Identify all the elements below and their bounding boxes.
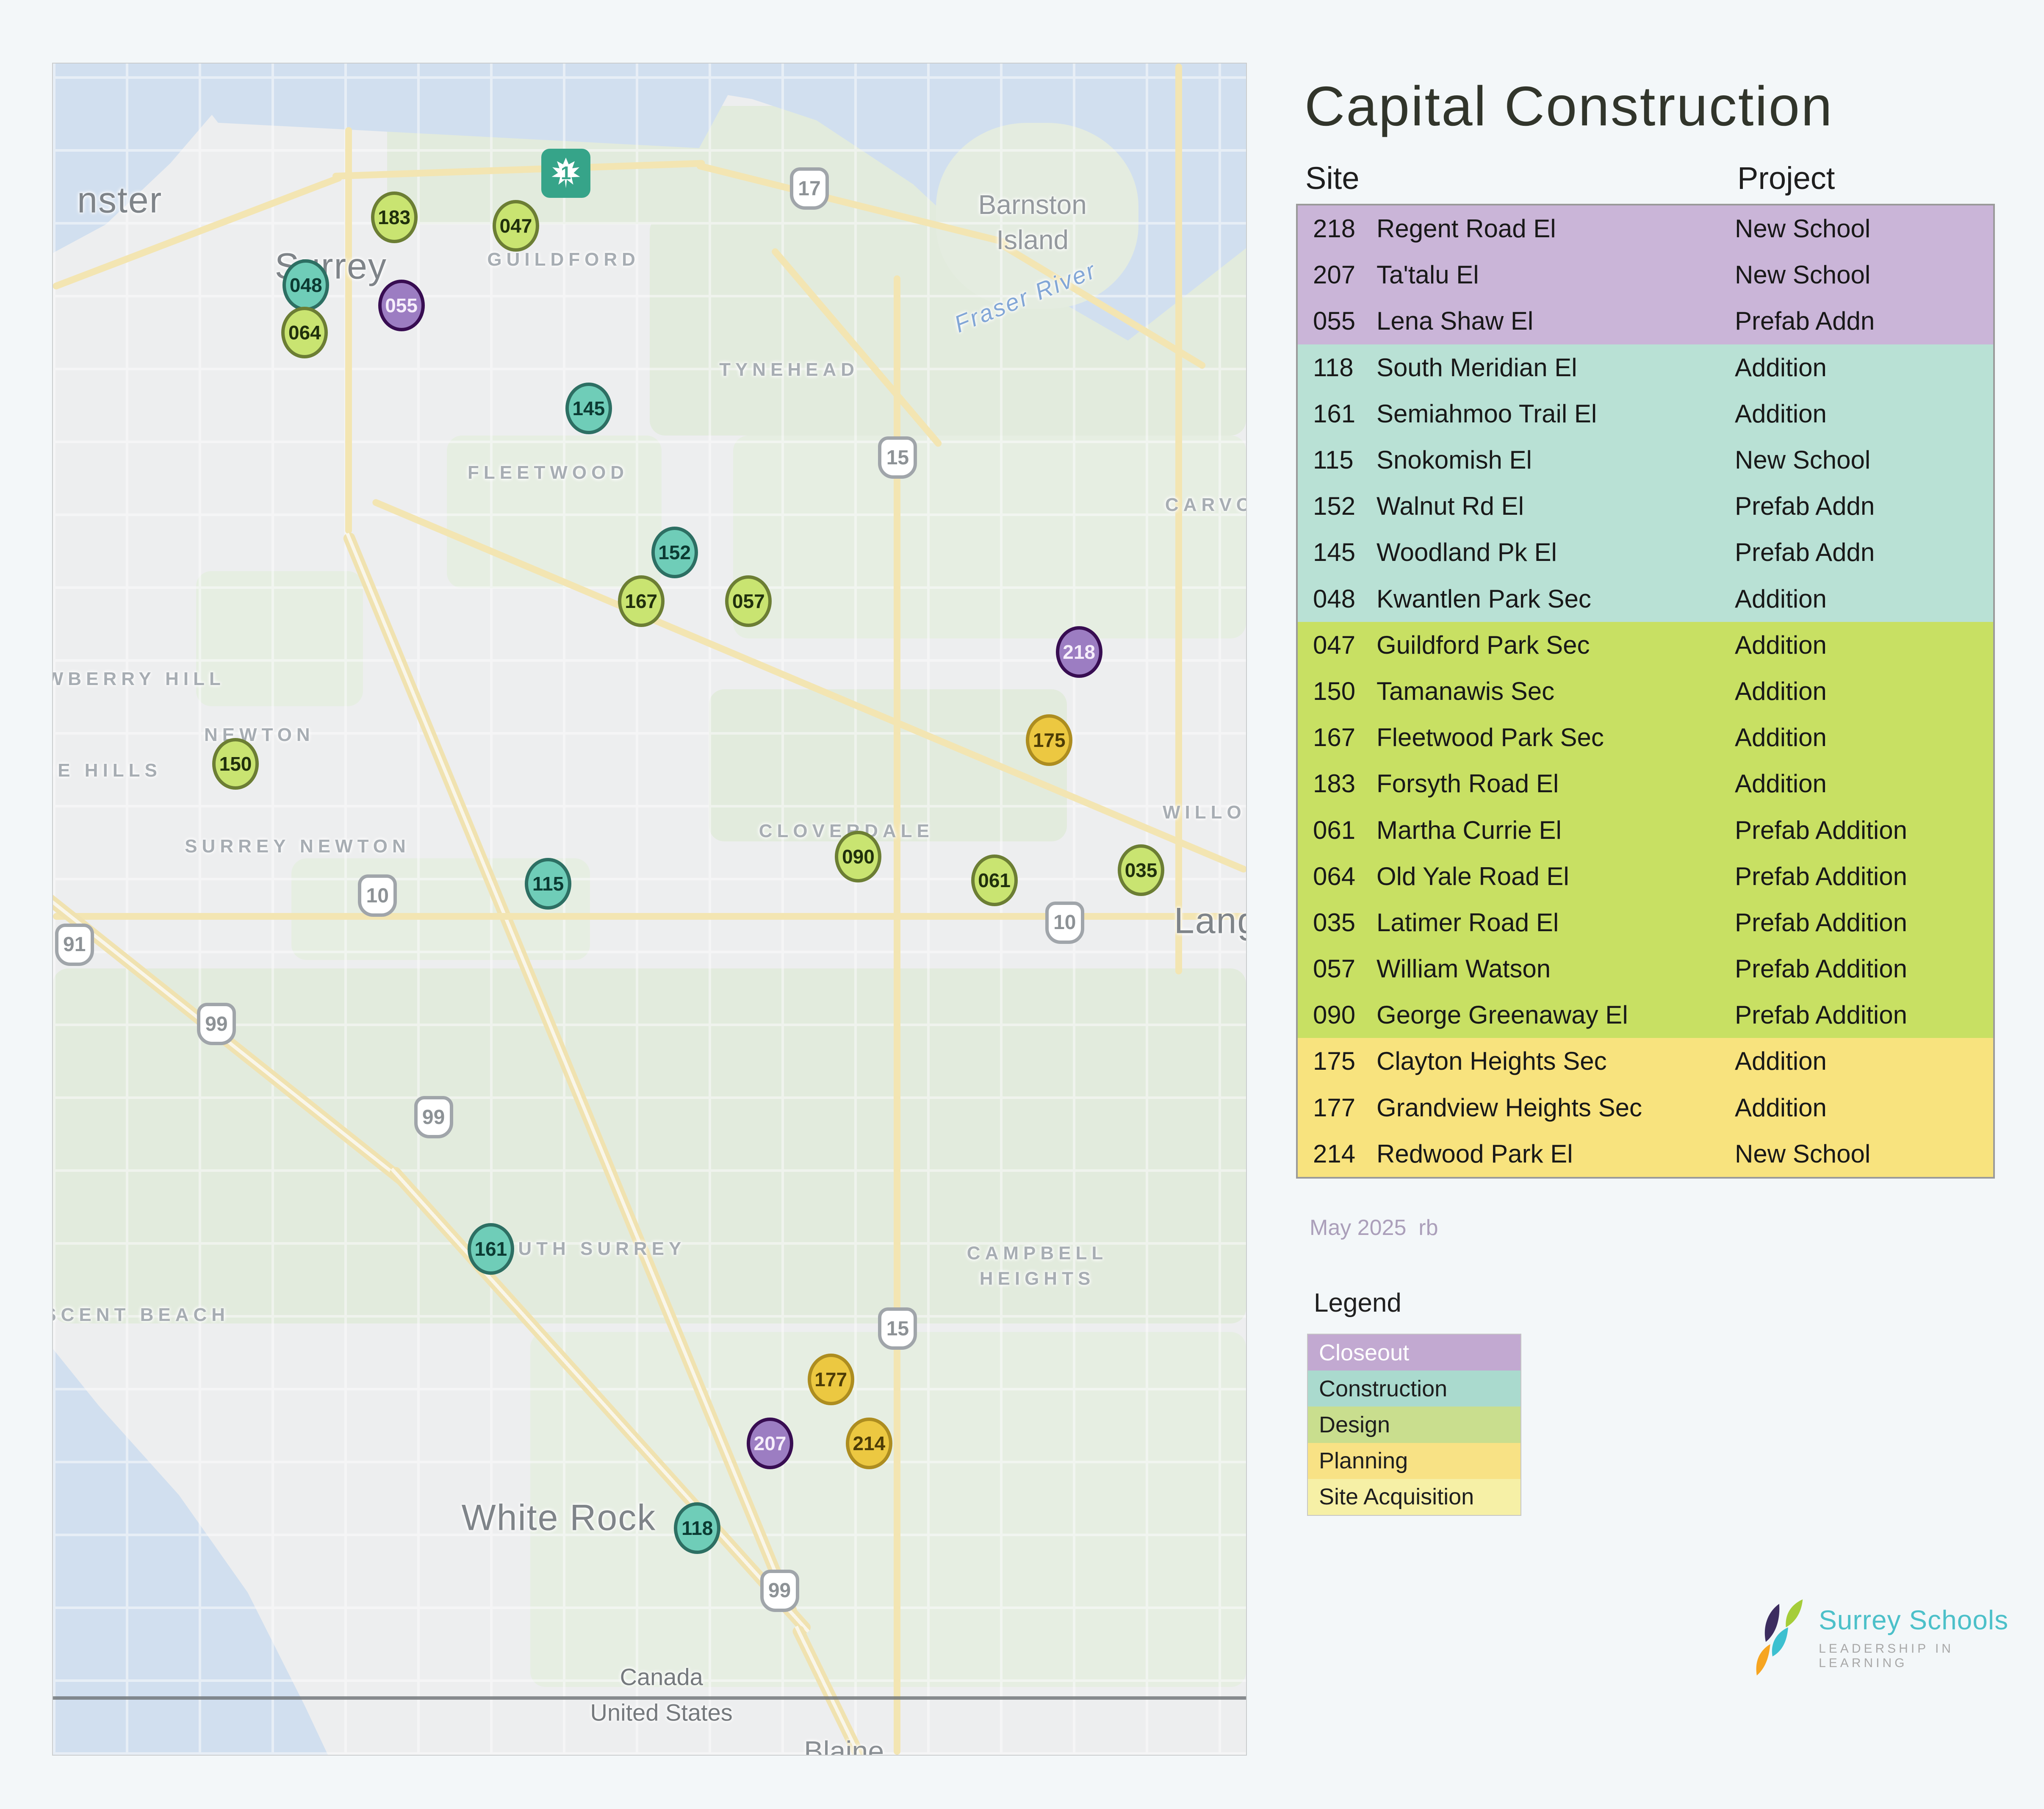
- highway-shield: 17: [790, 167, 829, 210]
- site-name: Old Yale Road El: [1377, 862, 1735, 891]
- table-row: 061Martha Currie ElPrefab Addition: [1298, 807, 1993, 853]
- table-row: 177Grandview Heights SecAddition: [1298, 1085, 1993, 1131]
- site-name: Tamanawis Sec: [1377, 677, 1735, 706]
- project-type: Prefab Addition: [1735, 862, 1993, 891]
- site-marker-218: 218: [1056, 626, 1102, 678]
- site-number: 115: [1313, 445, 1377, 474]
- project-type: Prefab Addn: [1735, 538, 1993, 567]
- site-marker-118: 118: [674, 1502, 720, 1554]
- site-number: 048: [1313, 584, 1377, 613]
- site-number: 145: [1313, 538, 1377, 567]
- table-row: 115Snokomish ElNew School: [1298, 437, 1993, 483]
- site-number: 064: [1313, 862, 1377, 891]
- table-row: 055Lena Shaw ElPrefab Addn: [1298, 298, 1993, 344]
- footnote-date: May 2025 rb: [1310, 1215, 1438, 1240]
- highway-shield: 99: [197, 1003, 236, 1045]
- table-row: 167Fleetwood Park SecAddition: [1298, 714, 1993, 760]
- site-name: Latimer Road El: [1377, 908, 1735, 937]
- logo-leaf-icon: [1753, 1597, 1809, 1678]
- site-name: Lena Shaw El: [1377, 306, 1735, 336]
- site-marker-177: 177: [808, 1354, 854, 1405]
- map-label: ESCENT BEACH: [52, 1304, 230, 1326]
- site-marker-048: 048: [283, 259, 329, 311]
- project-type: Addition: [1735, 584, 1993, 613]
- site-name: Forsyth Road El: [1377, 769, 1735, 798]
- map-label: Barnston Island: [939, 187, 1126, 258]
- legend: CloseoutConstructionDesignPlanningSite A…: [1307, 1334, 1521, 1516]
- project-type: New School: [1735, 445, 1993, 474]
- site-name: Redwood Park El: [1377, 1139, 1735, 1168]
- site-name: Grandview Heights Sec: [1377, 1093, 1735, 1122]
- site-marker-035: 035: [1118, 844, 1164, 896]
- map-label: CARVO: [1165, 494, 1247, 516]
- highway-shield: 15: [878, 1307, 917, 1350]
- map-label: TYNEHEAD: [719, 359, 859, 380]
- site-marker-183: 183: [371, 191, 418, 243]
- map-label: NE HILLS: [52, 760, 162, 781]
- table-row: 152Walnut Rd ElPrefab Addn: [1298, 483, 1993, 529]
- legend-item: Construction: [1308, 1371, 1521, 1407]
- table-row: 047Guildford Park SecAddition: [1298, 622, 1993, 668]
- table-row: 214Redwood Park ElNew School: [1298, 1131, 1993, 1177]
- map-label: WILLO: [1163, 802, 1246, 823]
- table-row: 118South Meridian ElAddition: [1298, 344, 1993, 391]
- project-type: New School: [1735, 214, 1993, 243]
- map-label: Canada: [620, 1663, 703, 1691]
- site-number: 118: [1313, 353, 1377, 382]
- project-type: Prefab Addition: [1735, 954, 1993, 983]
- project-type: Prefab Addn: [1735, 306, 1993, 336]
- site-number: 152: [1313, 491, 1377, 521]
- site-name: Clayton Heights Sec: [1377, 1046, 1735, 1076]
- site-name: Walnut Rd El: [1377, 491, 1735, 521]
- site-marker-090: 090: [835, 831, 881, 882]
- legend-item: Design: [1308, 1407, 1521, 1443]
- legend-item: Planning: [1308, 1443, 1521, 1479]
- map-label: SURREY NEWTON: [185, 836, 410, 857]
- table-row: 161Semiahmoo Trail ElAddition: [1298, 391, 1993, 437]
- legend-item: Closeout: [1308, 1335, 1521, 1371]
- surrey-map: nsterSurreyGUILDFORDBarnston IslandFrase…: [52, 63, 1247, 1756]
- site-number: 035: [1313, 908, 1377, 937]
- site-number: 061: [1313, 816, 1377, 845]
- project-type: Addition: [1735, 1093, 1993, 1122]
- site-name: Regent Road El: [1377, 214, 1735, 243]
- table-row: 150Tamanawis SecAddition: [1298, 668, 1993, 714]
- site-marker-167: 167: [618, 575, 665, 627]
- site-name: Martha Currie El: [1377, 816, 1735, 845]
- site-marker-064: 064: [281, 307, 328, 358]
- site-name: Snokomish El: [1377, 445, 1735, 474]
- site-marker-207: 207: [747, 1418, 793, 1469]
- project-type: Addition: [1735, 723, 1993, 752]
- project-type: New School: [1735, 1139, 1993, 1168]
- column-header-site: Site: [1305, 160, 1360, 196]
- project-type: Prefab Addition: [1735, 908, 1993, 937]
- site-number: 175: [1313, 1046, 1377, 1076]
- highway-shield: 10: [1045, 902, 1084, 944]
- site-marker-061: 061: [971, 855, 1018, 906]
- site-name: George Greenaway El: [1377, 1000, 1735, 1029]
- map-label: White Rock: [462, 1497, 656, 1539]
- site-name: Woodland Pk El: [1377, 538, 1735, 567]
- table-row: 057William WatsonPrefab Addition: [1298, 946, 1993, 992]
- table-row: 090George Greenaway ElPrefab Addition: [1298, 992, 1993, 1038]
- site-number: 090: [1313, 1000, 1377, 1029]
- site-marker-047: 047: [493, 200, 539, 252]
- map-label: United States: [590, 1699, 733, 1726]
- site-number: 057: [1313, 954, 1377, 983]
- highway-shield: 10: [358, 874, 397, 917]
- column-header-project: Project: [1737, 160, 1835, 196]
- highway-shield: 15: [878, 436, 917, 479]
- map-label: NEWTON: [204, 724, 315, 746]
- project-type: Addition: [1735, 399, 1993, 428]
- project-type: New School: [1735, 260, 1993, 289]
- projects-table: 218Regent Road ElNew School207Ta'talu El…: [1296, 204, 1995, 1179]
- site-number: 218: [1313, 214, 1377, 243]
- site-name: Guildford Park Sec: [1377, 630, 1735, 660]
- table-row: 183Forsyth Road ElAddition: [1298, 760, 1993, 807]
- project-type: Addition: [1735, 1046, 1993, 1076]
- site-name: Fleetwood Park Sec: [1377, 723, 1735, 752]
- table-row: 218Regent Road ElNew School: [1298, 205, 1993, 252]
- page-title: Capital Construction: [1305, 74, 1834, 138]
- surrey-schools-logo: Surrey Schools LEADERSHIP IN LEARNING: [1753, 1597, 2044, 1678]
- site-marker-175: 175: [1026, 714, 1072, 766]
- map-label: Blaine: [804, 1735, 884, 1756]
- project-type: Addition: [1735, 677, 1993, 706]
- site-name: Semiahmoo Trail El: [1377, 399, 1735, 428]
- highway-shield: 99: [760, 1570, 799, 1612]
- highway-shield: 99: [414, 1096, 453, 1138]
- site-number: 150: [1313, 677, 1377, 706]
- table-row: 048Kwantlen Park SecAddition: [1298, 576, 1993, 622]
- map-label: AWBERRY HILL: [52, 669, 225, 690]
- table-row: 207Ta'talu ElNew School: [1298, 252, 1993, 298]
- highway-shield: 91: [55, 924, 94, 966]
- site-number: 167: [1313, 723, 1377, 752]
- site-marker-152: 152: [651, 527, 698, 578]
- site-number: 207: [1313, 260, 1377, 289]
- map-label: FLEETWOOD: [468, 462, 629, 483]
- site-name: Kwantlen Park Sec: [1377, 584, 1735, 613]
- site-name: South Meridian El: [1377, 353, 1735, 382]
- site-number: 214: [1313, 1139, 1377, 1168]
- highway-1-number: 1: [561, 163, 571, 184]
- site-marker-161: 161: [468, 1223, 514, 1275]
- project-type: Addition: [1735, 769, 1993, 798]
- capital-construction-dashboard: nsterSurreyGUILDFORDBarnston IslandFrase…: [0, 0, 2044, 1809]
- table-row: 035Latimer Road ElPrefab Addition: [1298, 899, 1993, 946]
- site-marker-214: 214: [846, 1418, 892, 1469]
- logo-tagline: LEADERSHIP IN LEARNING: [1819, 1642, 2044, 1670]
- site-marker-055: 055: [378, 280, 425, 331]
- site-marker-057: 057: [725, 575, 772, 627]
- project-type: Prefab Addition: [1735, 1000, 1993, 1029]
- project-type: Prefab Addn: [1735, 491, 1993, 521]
- legend-title: Legend: [1314, 1288, 1401, 1318]
- logo-name: Surrey Schools: [1819, 1604, 2044, 1636]
- table-row: 175Clayton Heights SecAddition: [1298, 1038, 1993, 1084]
- site-name: William Watson: [1377, 954, 1735, 983]
- table-row: 064Old Yale Road ElPrefab Addition: [1298, 853, 1993, 899]
- map-label: Lang: [1174, 900, 1247, 942]
- site-number: 177: [1313, 1093, 1377, 1122]
- map-label: nster: [77, 180, 162, 222]
- table-row: 145Woodland Pk ElPrefab Addn: [1298, 529, 1993, 575]
- project-type: Prefab Addition: [1735, 816, 1993, 845]
- site-marker-115: 115: [525, 858, 571, 910]
- site-number: 047: [1313, 630, 1377, 660]
- legend-item: Site Acquisition: [1308, 1479, 1521, 1515]
- trans-canada-highway-1-badge: 1: [541, 149, 590, 198]
- site-marker-145: 145: [565, 383, 612, 434]
- project-type: Addition: [1735, 630, 1993, 660]
- site-number: 183: [1313, 769, 1377, 798]
- site-marker-150: 150: [212, 738, 259, 790]
- map-label: GUILDFORD: [487, 249, 640, 270]
- site-number: 055: [1313, 306, 1377, 336]
- map-label: CAMPBELL HEIGHTS: [931, 1241, 1143, 1291]
- site-name: Ta'talu El: [1377, 260, 1735, 289]
- project-type: Addition: [1735, 353, 1993, 382]
- site-number: 161: [1313, 399, 1377, 428]
